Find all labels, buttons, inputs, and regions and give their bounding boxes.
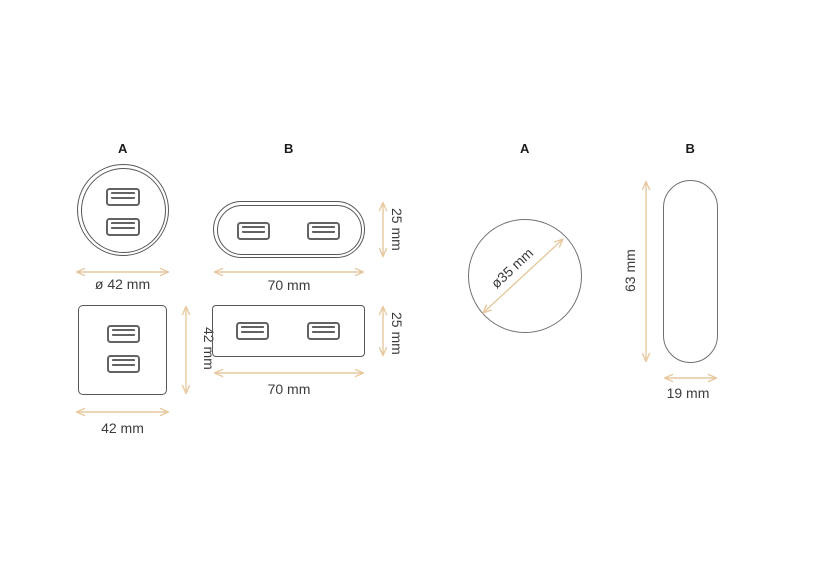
double-arrow-icon: [663, 372, 718, 384]
usb-port-icon: [106, 188, 140, 206]
rect-width-arrow: [213, 367, 365, 379]
oval-height-dim: 25 mm: [389, 208, 405, 248]
usb-slot: [312, 226, 335, 233]
square-height-arrow: [180, 305, 192, 395]
double-arrow-icon: [75, 406, 170, 418]
double-arrow-icon: [377, 201, 389, 258]
round-cutout-diameter-arrow: [468, 219, 582, 333]
usb-slot: [112, 359, 135, 366]
pill-cutout-width-dim: 19 mm: [648, 385, 728, 401]
variant-a-label-left: A: [78, 141, 168, 156]
double-arrow-icon: [180, 305, 192, 395]
usb-slot: [312, 326, 335, 333]
oval-faceplate: [213, 201, 365, 258]
usb-port-icon: [236, 322, 269, 340]
oval-width-dim: 70 mm: [213, 277, 365, 293]
rect-width-dim: 70 mm: [213, 381, 365, 397]
usb-port-icon: [307, 222, 340, 240]
double-arrow-icon: [468, 219, 582, 333]
usb-slot: [111, 222, 135, 229]
usb-port-icon: [307, 322, 340, 340]
square-faceplate: [78, 305, 167, 395]
double-arrow-icon: [640, 180, 652, 363]
square-width-dim: 42 mm: [75, 420, 170, 436]
usb-port-icon: [237, 222, 270, 240]
usb-slot: [112, 329, 135, 336]
variant-b-label-right: B: [663, 141, 718, 156]
pill-cutout: [663, 180, 718, 363]
usb-port-icon: [107, 325, 140, 343]
usb-slot: [111, 192, 135, 199]
usb-port-icon: [106, 218, 140, 236]
double-arrow-icon: [377, 305, 389, 357]
square-width-arrow: [75, 406, 170, 418]
rect-faceplate: [212, 305, 365, 357]
rect-height-arrow: [377, 305, 389, 357]
usb-port-icon: [107, 355, 140, 373]
usb-slot: [241, 326, 264, 333]
rect-height-dim: 25 mm: [389, 312, 405, 352]
round-faceplate-inner-ring: [81, 168, 166, 253]
variant-b-label-left: B: [213, 141, 365, 156]
dimension-diagram: A B A B ø 42 mm 25 mm 70 mm 42 mm 42 mm …: [0, 0, 813, 568]
pill-cutout-height-arrow: [640, 180, 652, 363]
double-arrow-icon: [213, 367, 365, 379]
circle-diameter-dim: ø 42 mm: [75, 276, 170, 292]
variant-a-label-right: A: [468, 141, 582, 156]
round-faceplate: [77, 164, 169, 256]
usb-slot: [242, 226, 265, 233]
pill-cutout-width-arrow: [663, 372, 718, 384]
pill-cutout-height-dim: 63 mm: [622, 252, 638, 292]
oval-height-arrow: [377, 201, 389, 258]
